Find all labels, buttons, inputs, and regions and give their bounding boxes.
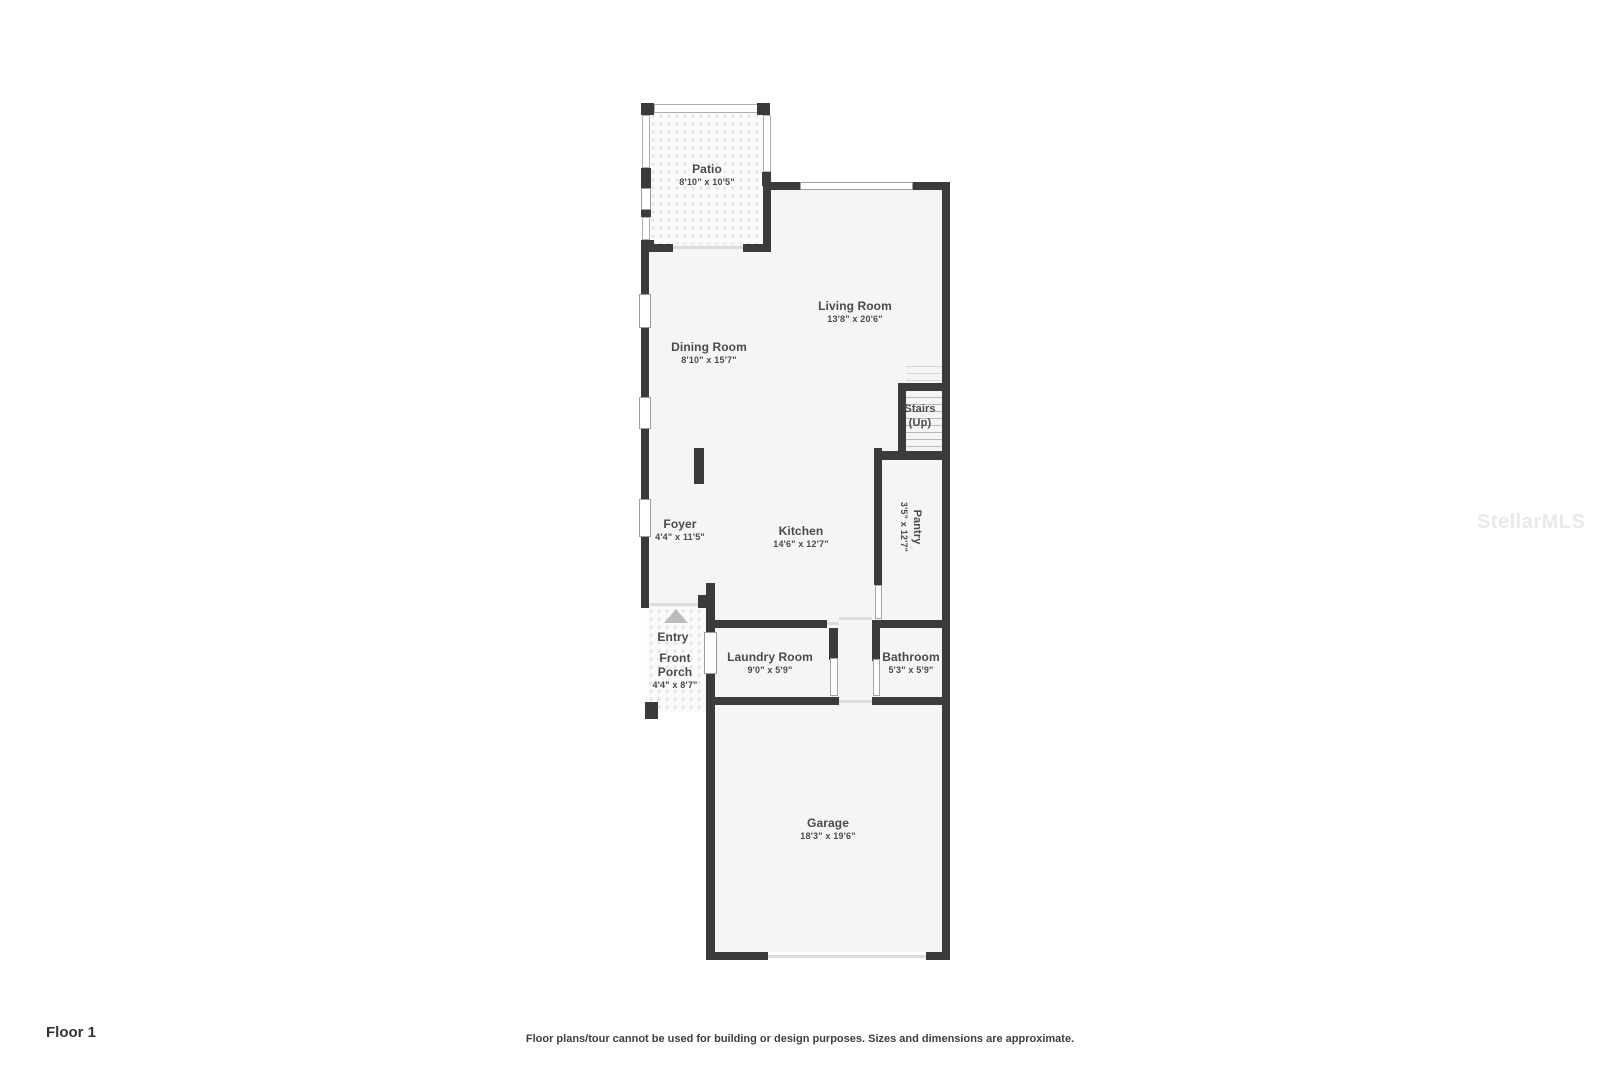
entry-arrow-icon <box>664 609 688 623</box>
room-label-entry: Entry <box>657 630 688 644</box>
room-label-patio: Patio 8'10" x 10'5" <box>679 162 734 188</box>
wall <box>874 448 882 585</box>
garage-door-threshold <box>768 955 926 958</box>
wall <box>694 448 704 484</box>
door-opening <box>830 658 838 696</box>
window <box>639 397 651 429</box>
room-name: Garage <box>800 816 855 830</box>
wall <box>872 628 880 661</box>
wall <box>706 952 768 960</box>
room-name: Dining Room <box>671 340 747 354</box>
wall <box>706 697 839 705</box>
room-name: Foyer <box>655 517 705 531</box>
patio-screen-wall <box>642 217 650 240</box>
wall <box>872 620 942 628</box>
door-threshold <box>839 700 872 703</box>
room-label-dining-room: Dining Room 8'10" x 15'7" <box>671 340 747 366</box>
sliding-door-threshold <box>673 246 743 249</box>
room-dims: 8'10" x 10'5" <box>679 177 734 188</box>
patio-screen-wall <box>763 115 771 172</box>
window <box>641 188 651 210</box>
wall <box>874 451 942 460</box>
wall <box>926 952 950 960</box>
room-dims: 9'0" x 5'9" <box>727 665 813 676</box>
wall <box>645 702 658 719</box>
patio-screen-wall <box>642 115 650 168</box>
floor-plan-page: Patio 8'10" x 10'5" Living Room 13'8" x … <box>0 0 1600 1066</box>
room-name: Stairs <box>904 402 935 416</box>
room-label-pantry: Pantry 3'5" x 12'7" <box>898 502 924 552</box>
room-name: Kitchen <box>773 524 828 538</box>
room-dims: 5'3" x 5'9" <box>882 665 939 676</box>
patio-screen-wall <box>654 104 758 113</box>
wall <box>641 168 651 188</box>
window <box>704 632 717 674</box>
room-label-garage: Garage 18'3" x 19'6" <box>800 816 855 842</box>
wall <box>757 103 770 115</box>
room-dims: (Up) <box>904 417 935 430</box>
room-name: Front Porch <box>647 651 703 679</box>
entry-door-threshold <box>650 603 698 606</box>
room-dims: 14'6" x 12'7" <box>773 539 828 550</box>
room-dims: 3'5" x 12'7" <box>898 502 909 552</box>
room-label-stairs: Stairs (Up) <box>904 402 935 430</box>
watermark: StellarMLS <box>1477 511 1585 534</box>
room-name: Living Room <box>818 299 892 313</box>
wall <box>706 620 827 628</box>
disclaimer-text: Floor plans/tour cannot be used for buil… <box>0 1033 1600 1045</box>
room-name: Entry <box>657 630 688 644</box>
room-dims: 4'4" x 8'7" <box>647 680 703 691</box>
room-label-kitchen: Kitchen 14'6" x 12'7" <box>773 524 828 550</box>
wall <box>942 182 950 960</box>
door-threshold <box>827 622 839 625</box>
door-opening <box>873 659 880 696</box>
room-name: Laundry Room <box>727 650 813 664</box>
wall <box>641 210 651 217</box>
window <box>639 499 651 537</box>
wall <box>829 628 838 660</box>
door-opening <box>875 585 882 619</box>
room-dims: 8'10" x 15'7" <box>671 355 747 366</box>
wall <box>641 103 654 115</box>
room-label-foyer: Foyer 4'4" x 11'5" <box>655 517 705 543</box>
room-dims: 13'8" x 20'6" <box>818 314 892 325</box>
wall <box>898 383 942 391</box>
wall <box>649 244 673 252</box>
wall <box>763 182 771 252</box>
wall <box>706 697 715 960</box>
room-label-front-porch: Front Porch 4'4" x 8'7" <box>647 651 703 691</box>
room-name: Bathroom <box>882 650 939 664</box>
room-label-laundry-room: Laundry Room 9'0" x 5'9" <box>727 650 813 676</box>
stairs-upper-treads <box>906 360 942 382</box>
door-threshold <box>839 617 872 620</box>
room-dims: 4'4" x 11'5" <box>655 532 705 543</box>
window <box>639 294 651 328</box>
wall <box>872 697 942 705</box>
room-name: Patio <box>679 162 734 176</box>
room-label-living-room: Living Room 13'8" x 20'6" <box>818 299 892 325</box>
room-dims: 18'3" x 19'6" <box>800 831 855 842</box>
room-name: Pantry <box>910 502 924 552</box>
window <box>800 182 913 190</box>
room-label-bathroom: Bathroom 5'3" x 5'9" <box>882 650 939 676</box>
